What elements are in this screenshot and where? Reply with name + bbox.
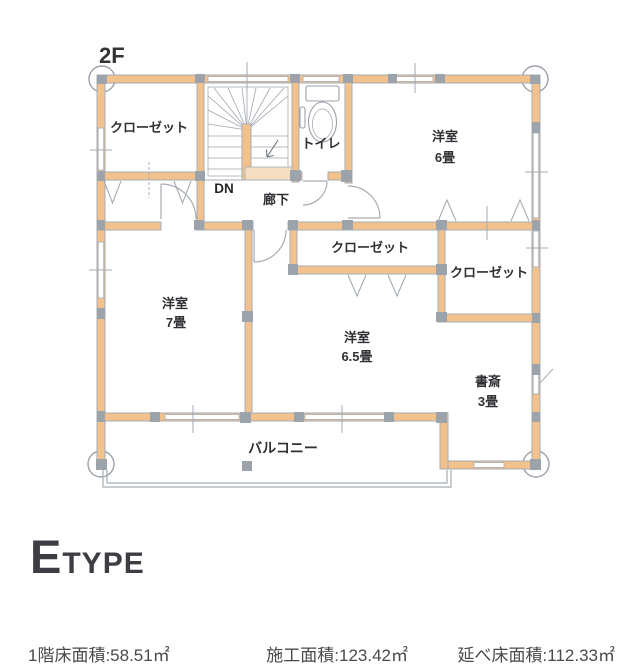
room-label-bedroom-7-size: 7畳 bbox=[166, 315, 186, 330]
post bbox=[194, 220, 204, 230]
room-label-bedroom-6-size: 6畳 bbox=[435, 150, 455, 165]
window bbox=[165, 415, 239, 420]
door-toilet bbox=[303, 181, 327, 205]
wall-right-closet-left bbox=[438, 230, 445, 322]
room-label-toilet: トイレ bbox=[301, 136, 340, 151]
post bbox=[342, 220, 353, 230]
window bbox=[303, 77, 339, 82]
bifold-mark bbox=[438, 200, 456, 221]
room-label-bedroom-6-name: 洋室 bbox=[432, 129, 458, 144]
post bbox=[388, 74, 397, 83]
door-bedroom-6 bbox=[348, 186, 380, 218]
post bbox=[195, 171, 205, 181]
window bbox=[395, 77, 433, 82]
window bbox=[305, 415, 385, 420]
room-label-bedroom-7-name: 洋室 bbox=[162, 296, 188, 311]
area-column-floor: 1階床面積:58.51㎡ 2階床面積:53.82㎡ bbox=[28, 593, 170, 670]
post bbox=[436, 220, 447, 230]
post bbox=[290, 170, 301, 181]
post bbox=[384, 412, 394, 422]
post bbox=[436, 412, 447, 423]
post bbox=[435, 74, 445, 83]
post bbox=[97, 220, 105, 230]
area-total-floor: 延べ床面積:112.33㎡ bbox=[413, 643, 615, 668]
area-floor1: 1階床面積:58.51㎡ bbox=[28, 643, 170, 668]
post bbox=[532, 364, 540, 375]
post bbox=[97, 75, 107, 84]
post bbox=[436, 312, 447, 322]
stairs-dn-label: DN bbox=[214, 181, 234, 196]
room-label-closet-middle: クローゼット bbox=[331, 240, 409, 255]
post bbox=[240, 412, 251, 423]
floor-label: 2F bbox=[99, 43, 125, 68]
door-bedroom-6-5 bbox=[254, 230, 286, 262]
wall-right-closet-bottom bbox=[438, 314, 540, 322]
room-label-study-name: 書斎 bbox=[475, 374, 501, 389]
room-label-study-size: 3畳 bbox=[478, 394, 498, 409]
stairs bbox=[204, 83, 292, 180]
wall-balcony-top bbox=[97, 413, 448, 421]
post-balcony-marker bbox=[242, 461, 252, 471]
post bbox=[242, 220, 253, 230]
room-label-bedroom-6-5-name: 洋室 bbox=[344, 330, 370, 345]
post bbox=[343, 74, 353, 83]
window bbox=[208, 77, 288, 82]
wall-stairs-left bbox=[197, 75, 204, 230]
stair-landing-wall bbox=[245, 167, 292, 180]
post bbox=[150, 412, 160, 422]
post bbox=[532, 412, 540, 422]
door-bedroom-7 bbox=[161, 184, 196, 219]
window bbox=[533, 133, 539, 218]
window bbox=[474, 463, 504, 468]
room-label-closet-top-left: クローゼット bbox=[110, 120, 188, 135]
post bbox=[242, 311, 253, 322]
fence-line bbox=[107, 470, 447, 483]
wall-toilet-left bbox=[292, 75, 299, 182]
post bbox=[97, 411, 105, 422]
post bbox=[290, 74, 300, 83]
post bbox=[532, 313, 540, 323]
post bbox=[436, 264, 447, 275]
bifold-mark bbox=[388, 275, 406, 296]
post bbox=[97, 171, 105, 181]
toilet-control bbox=[300, 107, 305, 128]
toilet-fixture bbox=[300, 86, 339, 142]
fence-line bbox=[103, 470, 451, 487]
window bbox=[533, 231, 539, 267]
wall-closet-tl-bottom bbox=[97, 172, 204, 180]
plan-type-rest: TYPE bbox=[62, 547, 144, 580]
window bbox=[98, 128, 104, 170]
plan-type-title: ETYPE bbox=[30, 529, 145, 584]
post bbox=[195, 74, 205, 83]
post bbox=[288, 264, 298, 275]
wall-mid bbox=[288, 222, 540, 230]
post bbox=[294, 412, 304, 422]
room-label-hallway: 廊下 bbox=[263, 192, 289, 207]
bifold-mark bbox=[511, 200, 529, 221]
post bbox=[341, 170, 352, 182]
room-label-bedroom-6-5-size: 6.5畳 bbox=[341, 349, 372, 364]
wall-mid bbox=[97, 222, 161, 230]
bifold-mark bbox=[104, 181, 121, 203]
area-column-construction: 施工面積:123.42㎡ :37.33㎡ bbox=[230, 593, 408, 670]
room-label-closet-right: クローゼット bbox=[450, 265, 528, 280]
area-column-total: 延べ床面積:112.33㎡ :33.98㎡ bbox=[413, 593, 615, 670]
room-label-balcony: バルコニー bbox=[248, 440, 318, 456]
area-construction-total: 施工面積:123.42㎡ bbox=[230, 643, 408, 668]
wall-toilet-right bbox=[345, 75, 352, 183]
toilet-tank bbox=[306, 86, 339, 101]
floor-plan-drawing: 2F クローゼット トイレ DN 廊下 洋室 6畳 洋室 7畳 洋室 6.5畳 … bbox=[0, 0, 640, 525]
wall-mid-closet-bottom bbox=[290, 266, 440, 274]
plan-type-initial: E bbox=[30, 530, 62, 583]
post bbox=[96, 459, 107, 470]
vent-window-mark bbox=[540, 369, 553, 383]
post bbox=[97, 308, 105, 319]
bifold-mark bbox=[348, 275, 366, 296]
post bbox=[530, 459, 541, 470]
post bbox=[532, 220, 540, 230]
floor-plan-page: 2F クローゼット トイレ DN 廊下 洋室 6畳 洋室 7畳 洋室 6.5畳 … bbox=[0, 0, 640, 670]
post bbox=[288, 220, 298, 230]
post bbox=[530, 75, 540, 84]
post bbox=[532, 122, 540, 133]
balcony-fence bbox=[103, 470, 451, 487]
